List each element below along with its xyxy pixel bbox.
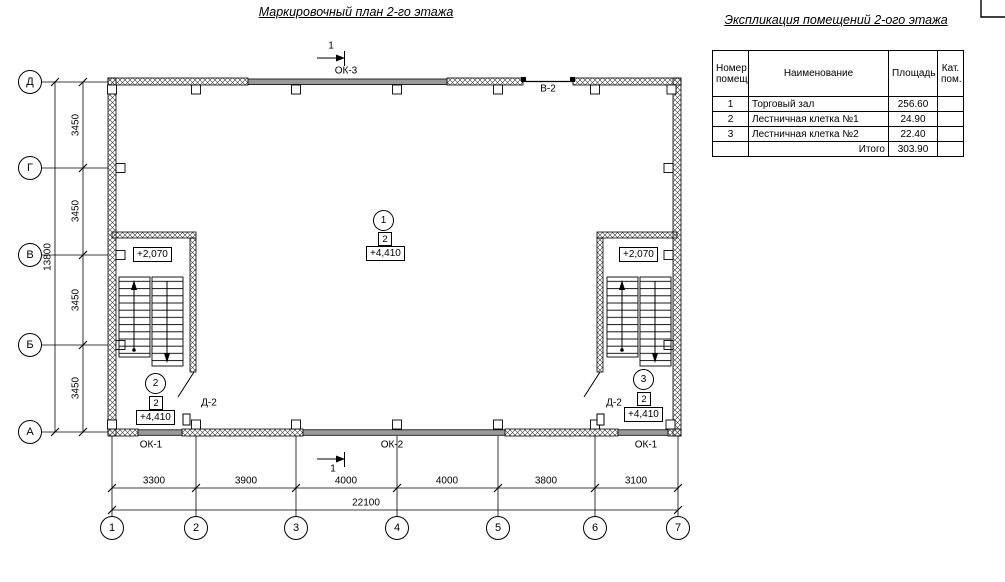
drawing-sheet: Маркировочный план 2-го этажа Экспликаци… [0, 0, 1005, 582]
section-marks [317, 51, 345, 467]
table-header-row: Номер помещ. Наименование Площадь Кат. п… [713, 51, 964, 97]
cell-category [938, 97, 964, 112]
axis-bubble-5: 5 [486, 516, 510, 540]
axis-bubble-7: 7 [666, 516, 690, 540]
cell-area: 22.40 [889, 127, 938, 142]
elevation-stair-left-landing: +2,070 [133, 247, 172, 262]
total-label: Итого [749, 142, 889, 157]
dim-col-total: 22100 [352, 498, 380, 509]
col-header-name: Наименование [749, 51, 889, 97]
label-door-left: Д-2 [201, 398, 217, 409]
table-row: 2 Лестничная клетка №1 24.90 [713, 112, 964, 127]
axis-bubble-b: Б [18, 333, 42, 357]
room-number-stair-left: 2 [145, 373, 166, 394]
axis-bubble-1: 1 [100, 516, 124, 540]
room-number-hall: 1 [373, 210, 394, 231]
room-category-stair-left: 2 [149, 396, 163, 410]
room-number-stair-right: 3 [633, 369, 654, 390]
cell-area: 256.60 [889, 97, 938, 112]
dim-col-bay-1: 3300 [143, 476, 165, 487]
stair-right [607, 277, 671, 366]
label-door-right: Д-2 [606, 398, 622, 409]
window-ok1-right [618, 430, 668, 436]
axis-bubble-d: Д [18, 70, 42, 94]
elevation-hall: +4,410 [366, 246, 405, 261]
cell-name: Торговый зал [749, 97, 889, 112]
cell-category [938, 127, 964, 142]
elevation-stair-right: +4,410 [624, 407, 663, 422]
window-ok2 [303, 430, 505, 436]
axis-bubble-2: 2 [184, 516, 208, 540]
cell-number: 1 [713, 97, 749, 112]
room-category-hall: 2 [378, 232, 392, 246]
window-ok3 [248, 79, 447, 85]
dim-col-bay-6: 3100 [625, 476, 647, 487]
table-total-row: Итого 303.90 [713, 142, 964, 157]
col-header-number: Номер помещ. [713, 51, 749, 97]
label-ok2: ОК-2 [381, 440, 404, 451]
plan-title: Маркировочный план 2-го этажа [259, 5, 454, 19]
dim-col-bay-2: 3900 [235, 476, 257, 487]
elevation-stair-left: +4,410 [136, 410, 175, 425]
label-v2: В-2 [540, 84, 556, 95]
cell-name: Лестничная клетка №2 [749, 127, 889, 142]
label-ok1-left: ОК-1 [140, 440, 163, 451]
table-row: 3 Лестничная клетка №2 22.40 [713, 127, 964, 142]
cell-name: Лестничная клетка №1 [749, 112, 889, 127]
dim-row-total: 13800 [43, 243, 54, 271]
dim-row-bay-3: 3450 [71, 289, 82, 311]
axis-bubble-v: В [18, 243, 42, 267]
dim-row-bay-1: 3450 [71, 114, 82, 136]
elevation-stair-right-landing: +2,070 [619, 247, 658, 262]
dim-row-bay-2: 3450 [71, 200, 82, 222]
label-ok1-right: ОК-1 [635, 440, 658, 451]
dim-row-bay-4: 3450 [71, 377, 82, 399]
axis-bubble-a: А [18, 420, 42, 444]
door-leaf-left [178, 372, 194, 397]
stair-left [119, 277, 183, 366]
col-header-category: Кат. пом. [938, 51, 964, 97]
room-category-stair-right: 2 [637, 392, 651, 406]
cell-category [938, 112, 964, 127]
cell-number: 2 [713, 112, 749, 127]
table-title: Экспликация помещений 2-ого этажа [724, 13, 947, 27]
axis-bubble-6: 6 [583, 516, 607, 540]
door-leaf-right [584, 372, 600, 397]
dim-col-bay-3: 4000 [335, 476, 357, 487]
axis-bubble-3: 3 [284, 516, 308, 540]
label-ok3: ОК-3 [335, 66, 358, 77]
doors [178, 372, 604, 425]
table-row: 1 Торговый зал 256.60 [713, 97, 964, 112]
section-mark-bottom-label: 1 [330, 464, 336, 475]
sheet-frame-corner [981, 0, 1005, 17]
explication-table: Номер помещ. Наименование Площадь Кат. п… [712, 50, 964, 157]
dim-col-bay-5: 3800 [535, 476, 557, 487]
dim-col-bay-4: 4000 [436, 476, 458, 487]
gate-v2 [521, 77, 575, 82]
total-value: 303.90 [889, 142, 938, 157]
section-mark-top-label: 1 [328, 41, 334, 52]
cell-number [713, 142, 749, 157]
axis-bubble-4: 4 [385, 516, 409, 540]
window-ok1-left [138, 430, 182, 436]
col-header-area: Площадь [889, 51, 938, 97]
axis-bubble-g: Г [18, 156, 42, 180]
cell-category [938, 142, 964, 157]
cell-number: 3 [713, 127, 749, 142]
cell-area: 24.90 [889, 112, 938, 127]
